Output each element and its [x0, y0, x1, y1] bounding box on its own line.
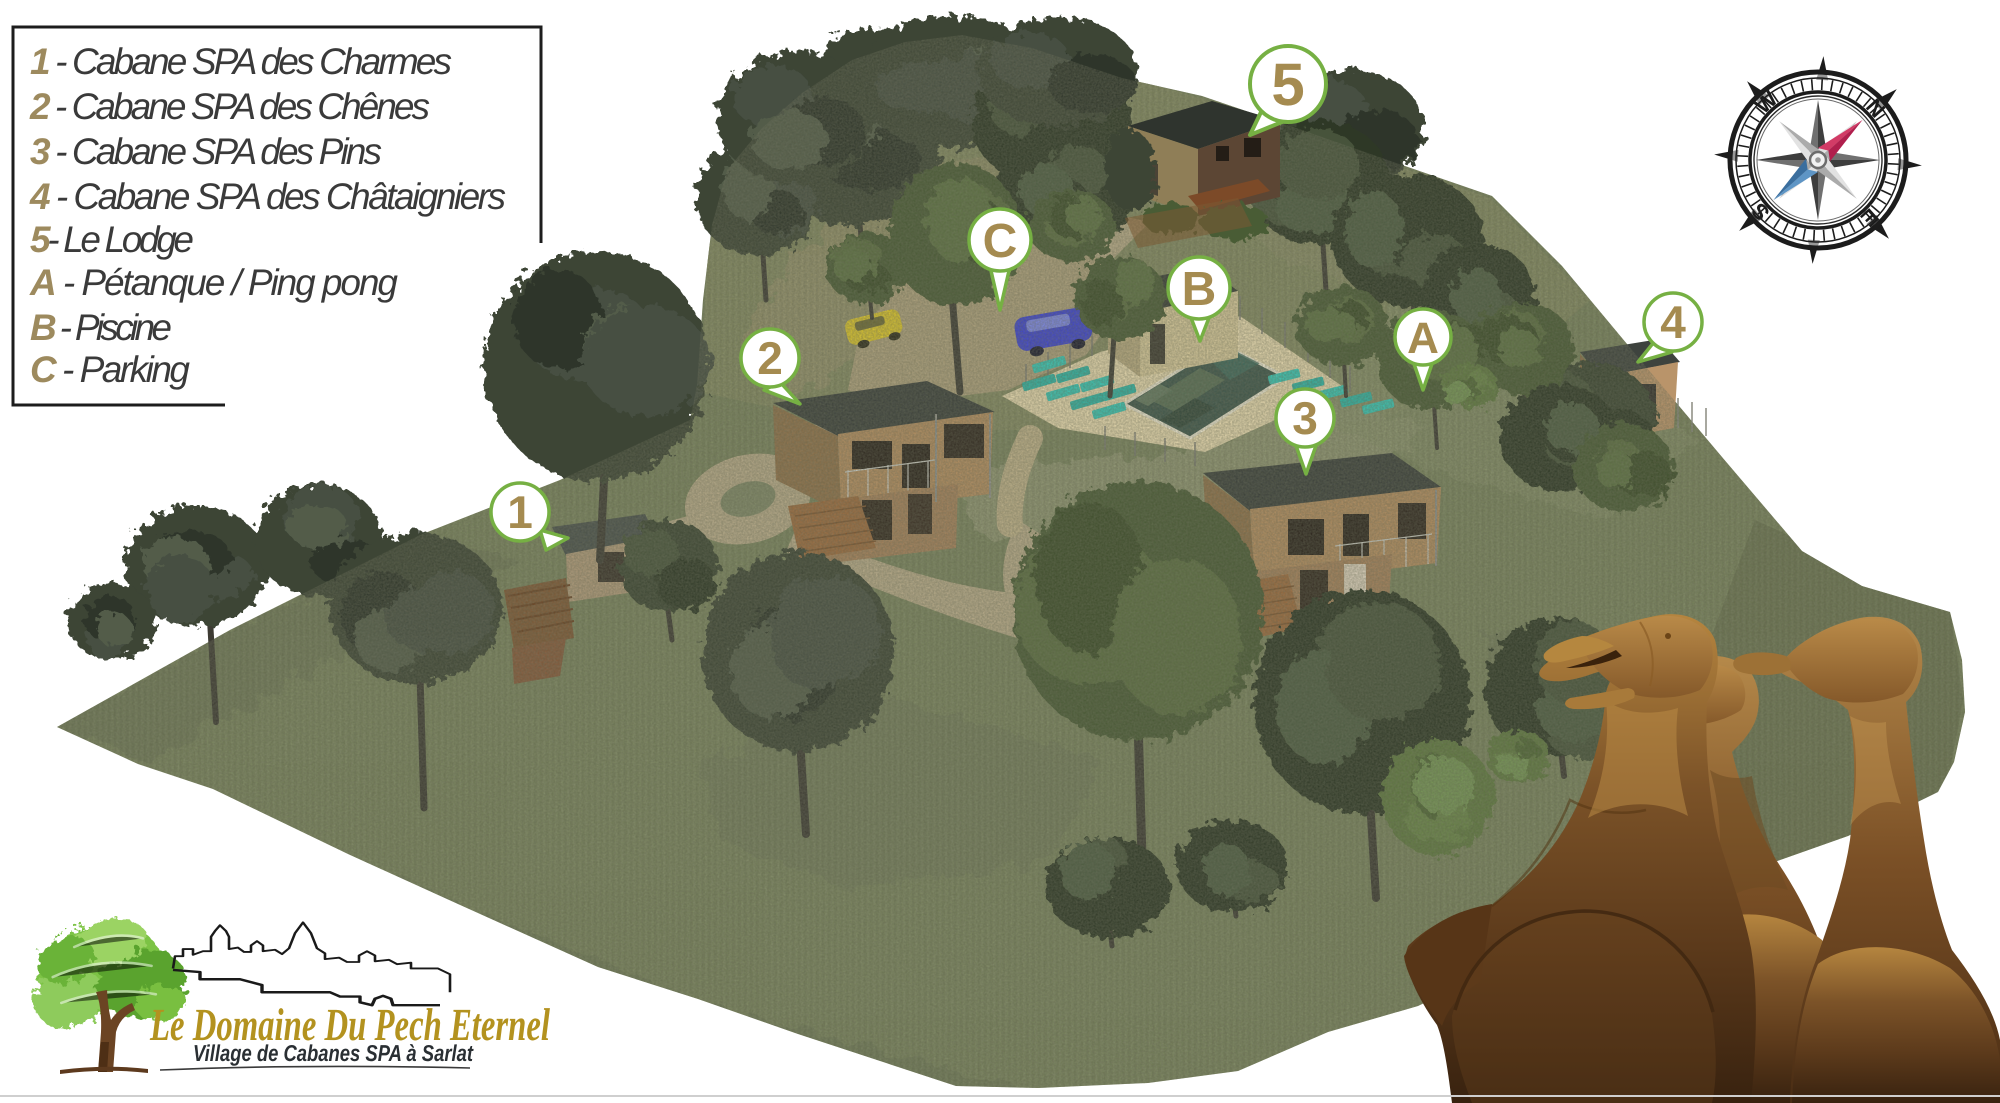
svg-text:3: 3 — [1292, 392, 1318, 444]
svg-text:4: 4 — [1660, 296, 1686, 348]
svg-text:2: 2 — [757, 332, 783, 384]
svg-text:C - Parking: C - Parking — [30, 349, 190, 390]
svg-text:1 - Cabane SPA des Charmes: 1 - Cabane SPA des Charmes — [30, 41, 452, 82]
svg-text:B - Piscine: B - Piscine — [30, 307, 172, 348]
svg-text:A: A — [1407, 314, 1439, 363]
svg-text:4 - Cabane SPA des Châtaignier: 4 - Cabane SPA des Châtaigniers — [29, 176, 506, 217]
svg-text:B: B — [1182, 263, 1217, 316]
svg-text:5: 5 — [1271, 51, 1304, 118]
svg-text:5- Le Lodge: 5- Le Lodge — [30, 219, 194, 260]
svg-text:2 - Cabane SPA des Chênes: 2 - Cabane SPA des Chênes — [29, 86, 430, 127]
svg-text:3 - Cabane SPA des Pins: 3 - Cabane SPA des Pins — [30, 131, 382, 172]
svg-text:C: C — [983, 215, 1018, 268]
svg-text:Village de Cabanes SPA à Sarla: Village de Cabanes SPA à Sarlat — [193, 1040, 474, 1066]
svg-text:A - Pétanque / Ping pong: A - Pétanque / Ping pong — [29, 262, 398, 303]
svg-text:1: 1 — [507, 486, 533, 538]
